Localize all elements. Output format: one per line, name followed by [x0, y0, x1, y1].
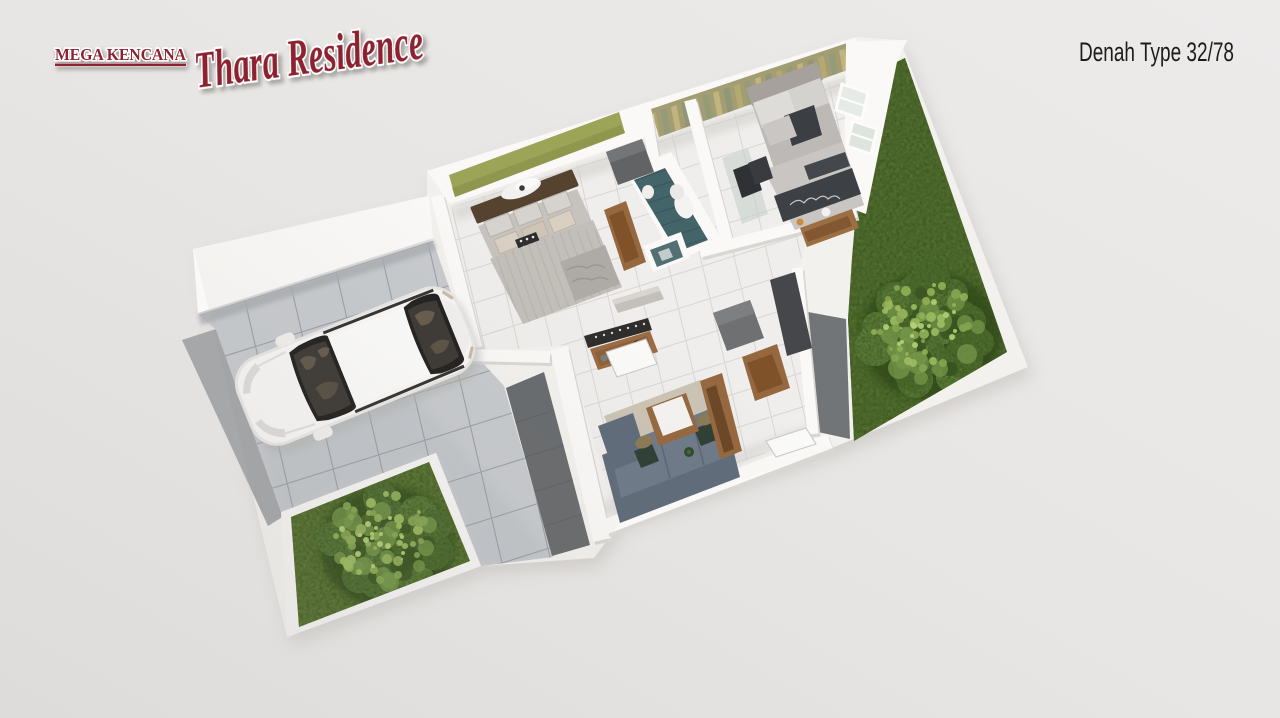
- svg-text:MEGA KENCANA: MEGA KENCANA: [55, 45, 187, 64]
- svg-text:Denah Type 32/78: Denah Type 32/78: [1079, 37, 1234, 67]
